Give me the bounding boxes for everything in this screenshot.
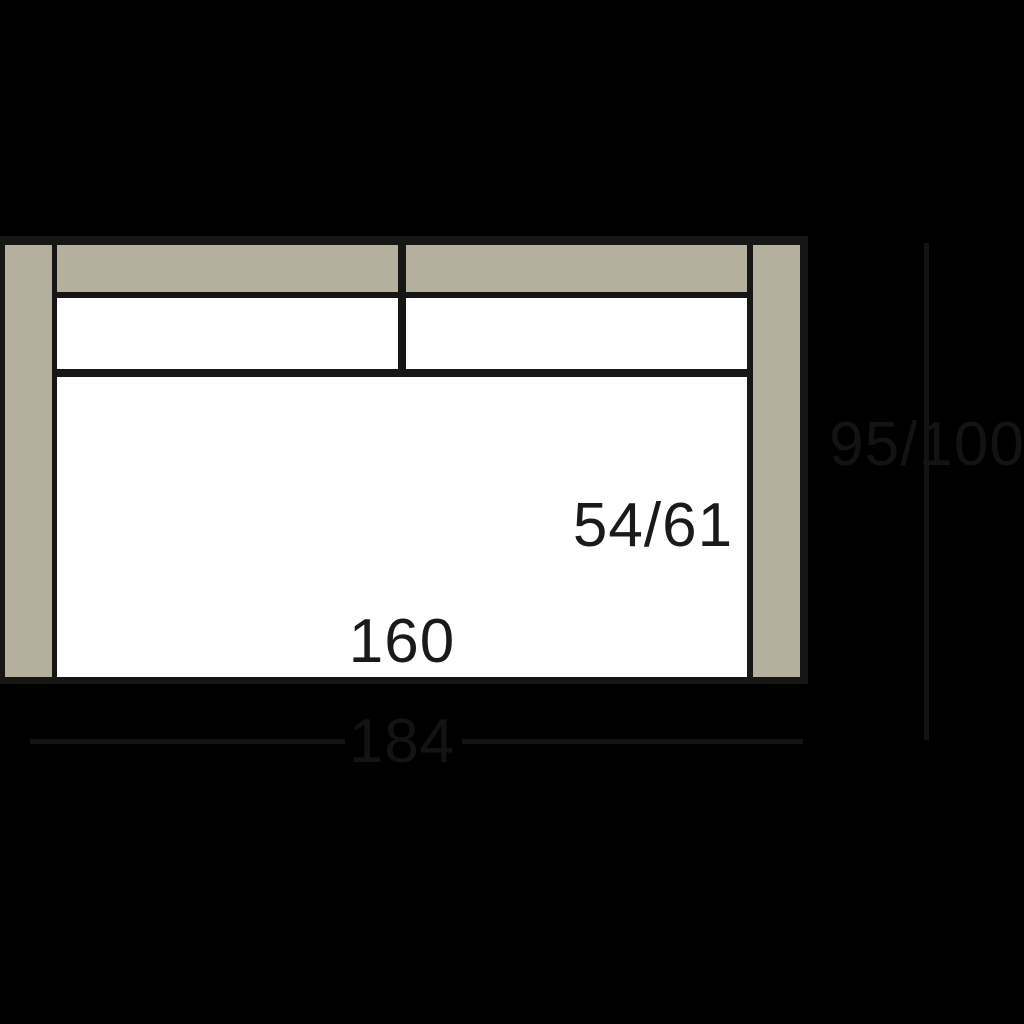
overall-depth-dimension-line bbox=[924, 243, 929, 740]
seat-width-label: 160 bbox=[302, 610, 502, 674]
backrest-cushion-right bbox=[406, 245, 747, 292]
overall-width-dimension-line-right bbox=[462, 739, 803, 744]
seat-depth-label: 54/61 bbox=[553, 494, 753, 558]
seatback-cushion-right bbox=[406, 298, 747, 369]
seatback-cushion-left bbox=[57, 298, 398, 369]
overall-depth-dimension-label: 95/100 bbox=[812, 413, 1024, 477]
left-armrest bbox=[5, 245, 52, 677]
right-armrest bbox=[753, 245, 800, 677]
sofa-diagram: 54/61 160 bbox=[0, 236, 808, 684]
overall-width-dimension-line-left bbox=[30, 739, 345, 744]
seat-area: 54/61 160 bbox=[57, 377, 747, 677]
backrest-cushion-left bbox=[57, 245, 398, 292]
overall-width-dimension-label: 184 bbox=[302, 710, 502, 774]
